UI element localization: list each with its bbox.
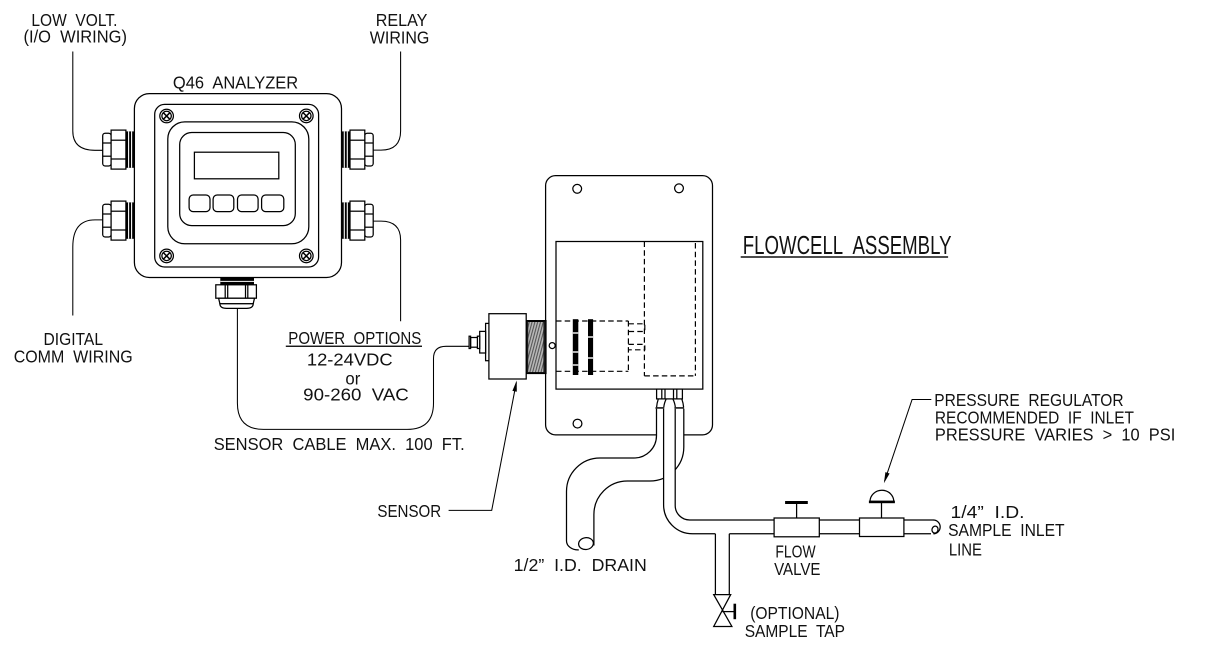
svg-text:FLOWCELL ASSEMBLY: FLOWCELL ASSEMBLY xyxy=(743,230,952,260)
svg-text:VALVE: VALVE xyxy=(774,559,820,579)
svg-text:POWER OPTIONS: POWER OPTIONS xyxy=(288,328,421,348)
svg-text:SAMPLE TAP: SAMPLE TAP xyxy=(745,621,845,641)
svg-text:PRESSURE VARIES > 10 PSI: PRESSURE VARIES > 10 PSI xyxy=(935,424,1175,444)
svg-text:COMM WIRING: COMM WIRING xyxy=(14,347,133,367)
svg-text:1/2” I.D. DRAIN: 1/2” I.D. DRAIN xyxy=(514,555,647,575)
svg-text:SAMPLE INLET: SAMPLE INLET xyxy=(948,520,1065,540)
svg-text:12-24VDC: 12-24VDC xyxy=(307,350,393,370)
svg-text:1/4” I.D.: 1/4” I.D. xyxy=(951,502,1025,522)
svg-text:90-260 VAC: 90-260 VAC xyxy=(303,384,409,404)
svg-text:(I/O WIRING): (I/O WIRING) xyxy=(24,27,128,47)
svg-text:WIRING: WIRING xyxy=(370,28,430,48)
svg-text:Q46 ANALYZER: Q46 ANALYZER xyxy=(173,73,298,93)
svg-text:(OPTIONAL): (OPTIONAL) xyxy=(750,603,839,623)
svg-text:SENSOR CABLE MAX. 100 FT.: SENSOR CABLE MAX. 100 FT. xyxy=(214,434,465,454)
svg-text:SENSOR: SENSOR xyxy=(377,501,441,521)
svg-text:LINE: LINE xyxy=(949,540,982,560)
